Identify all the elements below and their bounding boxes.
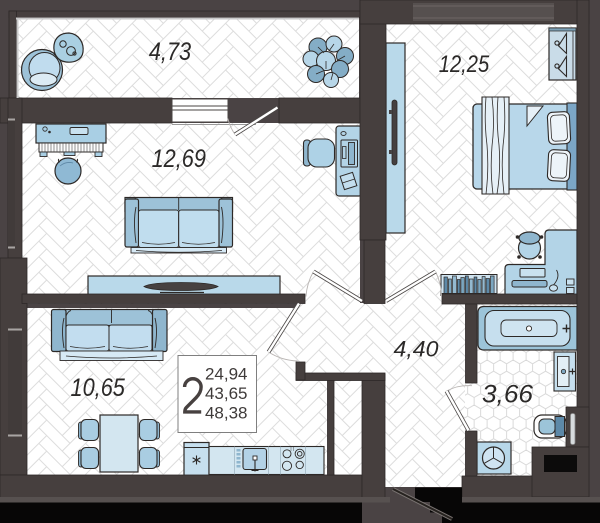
svg-text:24,94: 24,94 — [205, 365, 248, 384]
svg-text:43,65: 43,65 — [205, 384, 248, 403]
svg-text:10,65: 10,65 — [70, 373, 125, 401]
svg-text:12,69: 12,69 — [152, 144, 206, 172]
svg-text:4,73: 4,73 — [149, 37, 191, 65]
svg-text:48,38: 48,38 — [205, 404, 248, 423]
svg-text:12,25: 12,25 — [439, 50, 490, 77]
svg-text:4,40: 4,40 — [394, 337, 439, 361]
svg-text:3,66: 3,66 — [482, 381, 534, 408]
